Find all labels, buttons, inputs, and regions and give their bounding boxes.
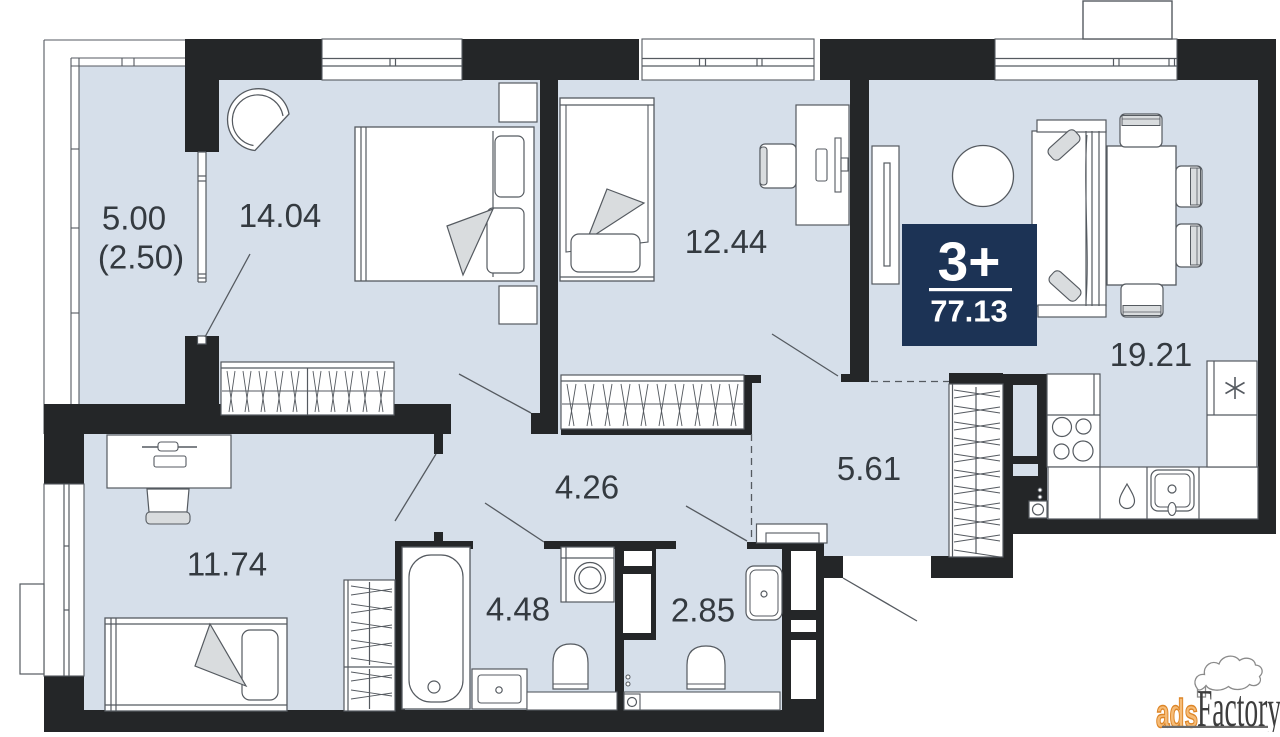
svg-text:(2.50): (2.50) (98, 239, 184, 276)
svg-text:3+: 3+ (938, 231, 1001, 293)
svg-text:4.26: 4.26 (555, 469, 619, 506)
svg-text:2.85: 2.85 (671, 592, 735, 629)
svg-text:77.13: 77.13 (930, 294, 1008, 329)
svg-text:12.44: 12.44 (685, 223, 768, 260)
svg-text:14.04: 14.04 (239, 197, 322, 234)
svg-text:5.00: 5.00 (102, 200, 166, 237)
svg-text:11.74: 11.74 (187, 546, 267, 583)
svg-text:4.48: 4.48 (486, 591, 550, 628)
svg-text:Factory: Factory (1197, 680, 1280, 732)
svg-text:19.21: 19.21 (1110, 336, 1193, 373)
svg-text:5.61: 5.61 (837, 450, 901, 487)
